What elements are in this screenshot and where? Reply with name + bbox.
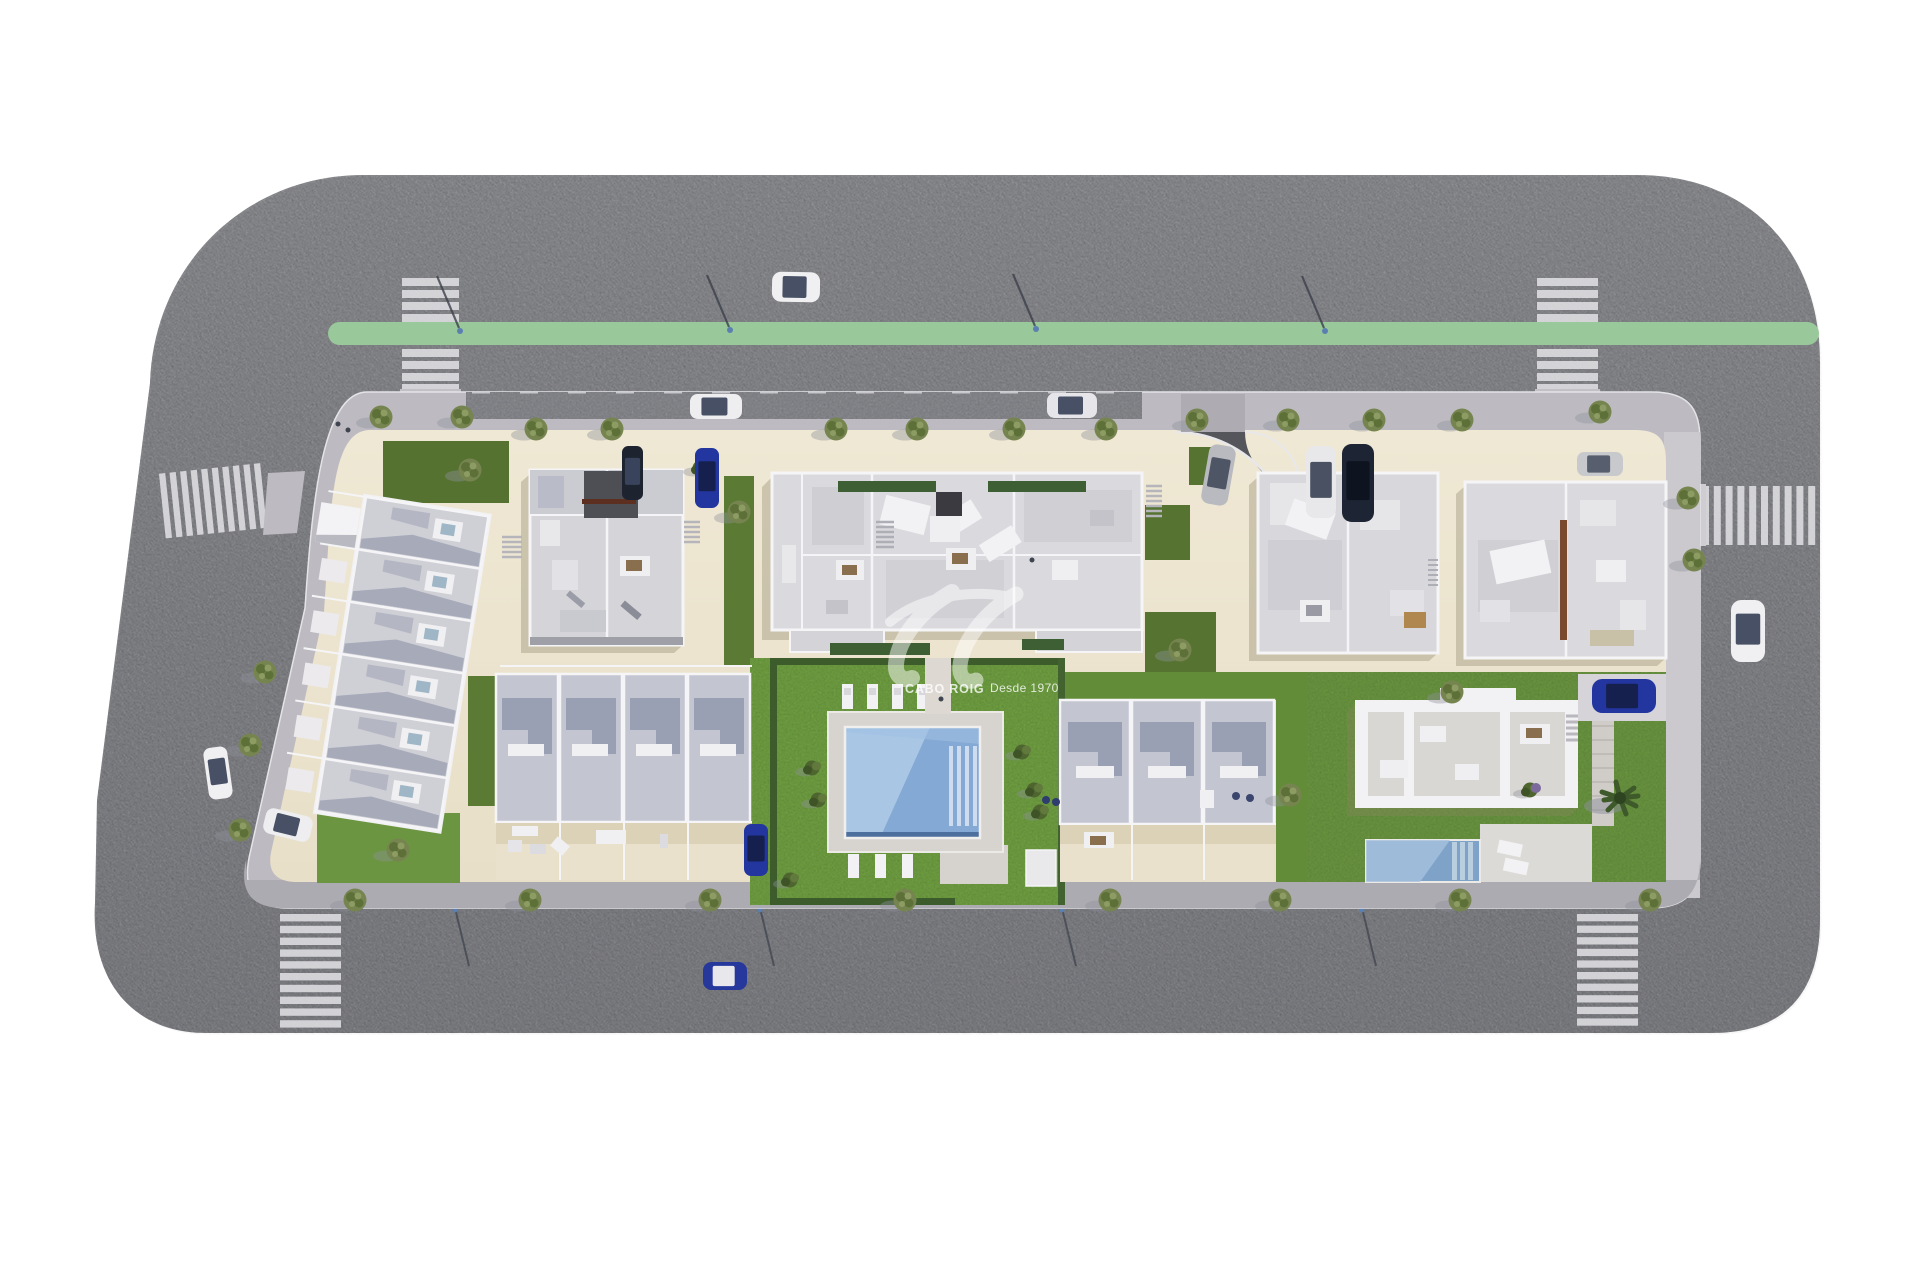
svg-text:CABO ROIG: CABO ROIG <box>905 682 984 696</box>
svg-text:Desde 1970: Desde 1970 <box>990 681 1059 695</box>
